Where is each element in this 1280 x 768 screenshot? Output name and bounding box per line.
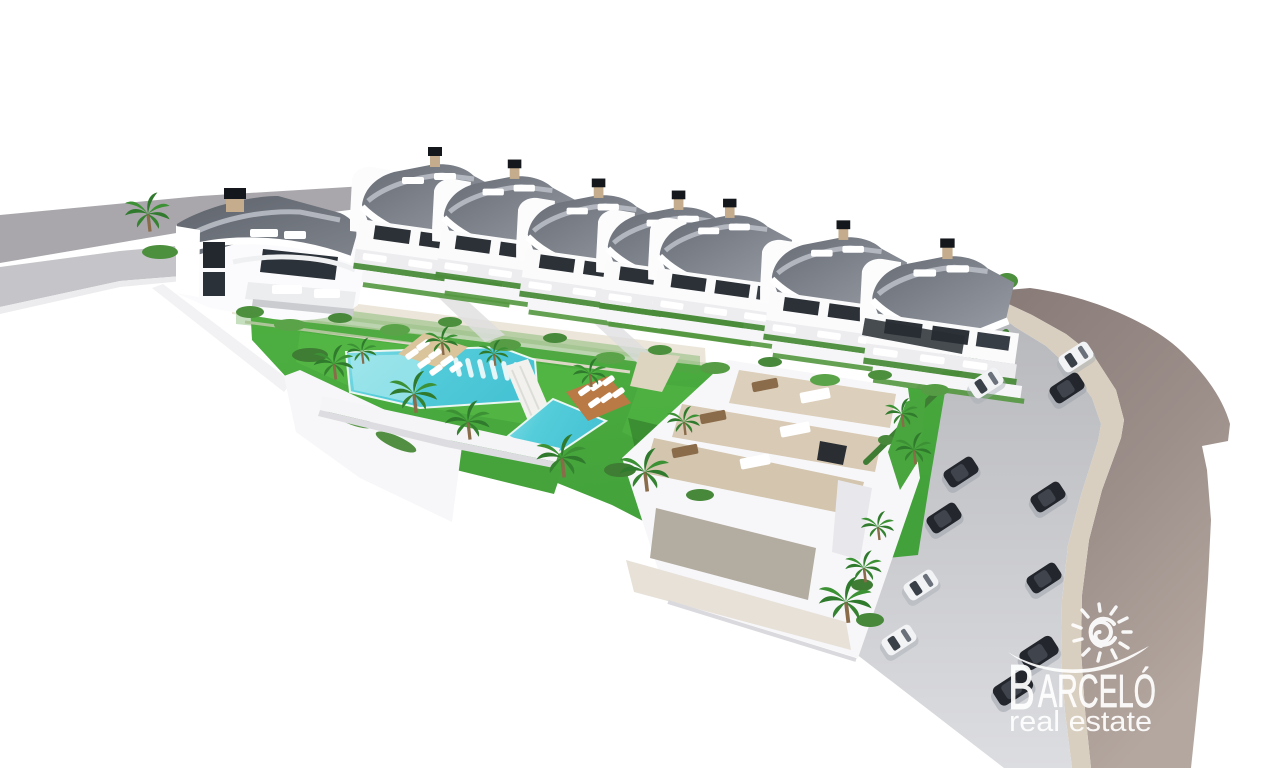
svg-text:real estate: real estate — [1009, 706, 1152, 738]
